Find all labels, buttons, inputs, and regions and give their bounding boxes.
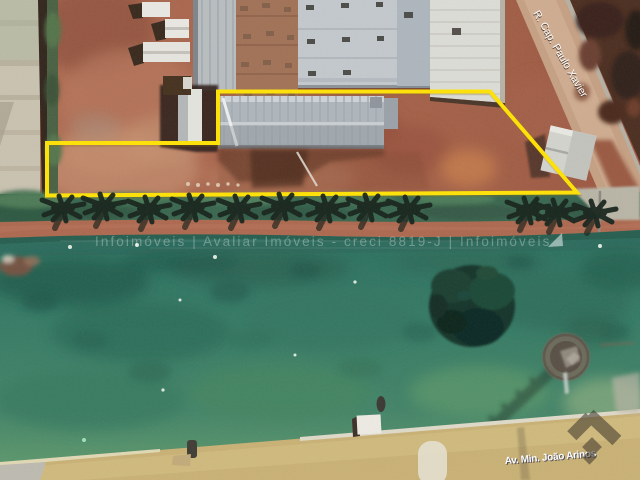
svg-text:Infoimóveis | Avaliar Imóvei: Infoimóveis | Avaliar Imóveis - creci 88… <box>95 234 551 249</box>
